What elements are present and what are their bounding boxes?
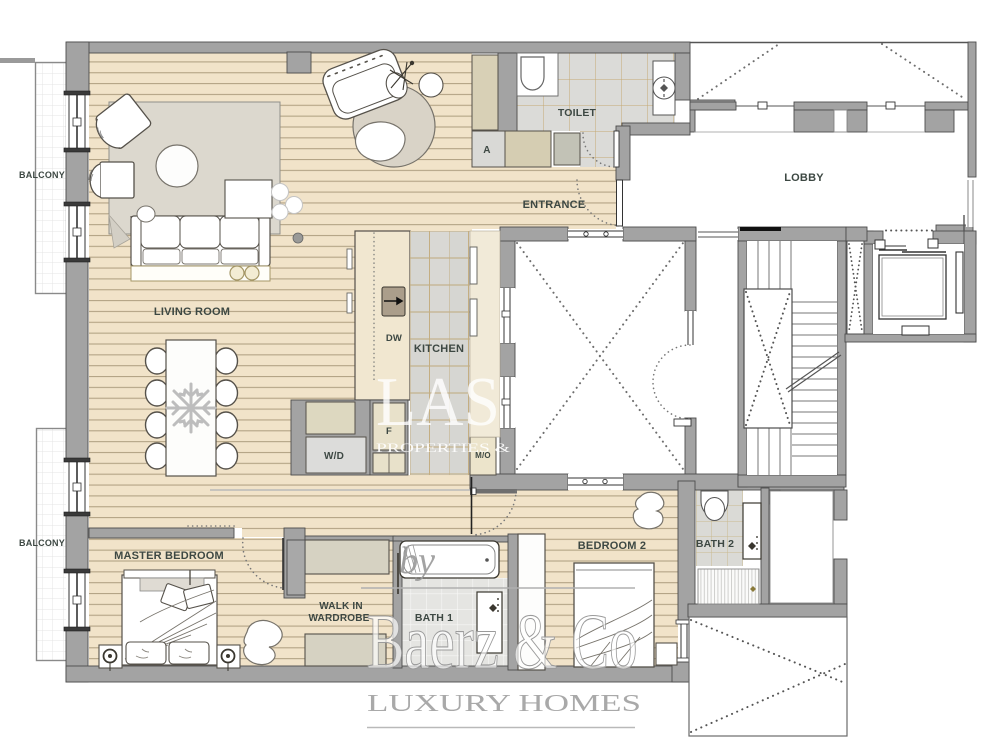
svg-text:KITCHEN: KITCHEN <box>414 343 464 355</box>
svg-text:LOBBY: LOBBY <box>784 172 824 184</box>
svg-text:TOILET: TOILET <box>558 107 597 119</box>
svg-text:MASTER BEDROOM: MASTER BEDROOM <box>114 550 224 562</box>
svg-text:BALCONY: BALCONY <box>19 170 65 180</box>
svg-text:by: by <box>399 540 435 582</box>
svg-text:BATH 2: BATH 2 <box>696 538 734 550</box>
svg-text:WARDROBE: WARDROBE <box>308 613 369 624</box>
svg-text:W/D: W/D <box>324 451 344 462</box>
svg-text:LIVING ROOM: LIVING ROOM <box>154 306 230 318</box>
svg-text:BALCONY: BALCONY <box>19 538 65 548</box>
svg-text:LAS: LAS <box>376 364 500 441</box>
svg-text:A: A <box>483 145 490 156</box>
svg-text:DW: DW <box>386 333 402 344</box>
svg-text:WALK IN: WALK IN <box>319 601 363 612</box>
svg-text:Baerz & Co: Baerz & Co <box>367 599 638 686</box>
svg-text:LUXURY HOMES: LUXURY HOMES <box>367 691 641 717</box>
svg-text:PROPERTIES &: PROPERTIES & <box>376 440 510 455</box>
svg-text:ENTRANCE: ENTRANCE <box>523 199 586 211</box>
svg-text:BEDROOM 2: BEDROOM 2 <box>578 540 646 552</box>
